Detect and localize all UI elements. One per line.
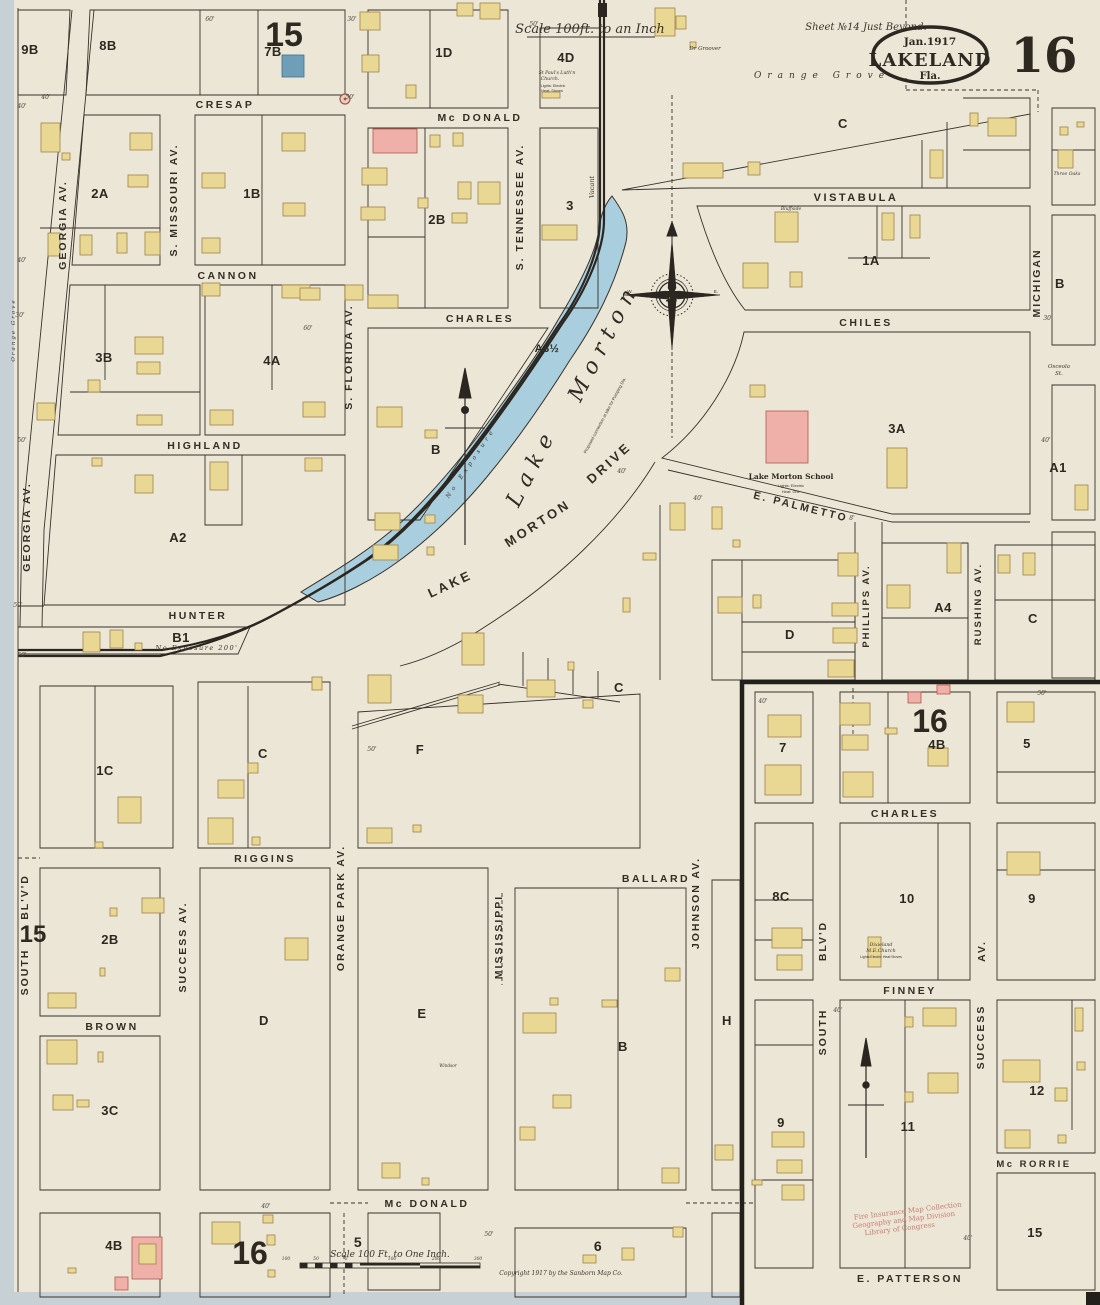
building-footprint xyxy=(406,85,416,98)
sheet-number: 15 xyxy=(265,16,303,54)
street-label: CHILES xyxy=(839,317,893,329)
building-footprint xyxy=(622,1248,634,1260)
building-footprint xyxy=(772,928,802,948)
building-footprint xyxy=(142,898,164,913)
building-footprint xyxy=(765,765,801,795)
building-footprint xyxy=(750,385,765,397)
building-footprint xyxy=(947,543,961,573)
dimension-mark: 40' xyxy=(16,103,27,110)
building-footprint xyxy=(768,715,801,737)
building-footprint xyxy=(923,1008,956,1026)
building-footprint xyxy=(92,458,102,466)
dimension-mark: 40' xyxy=(40,94,51,101)
block-number: 6 xyxy=(594,1238,602,1254)
building-footprint xyxy=(382,1163,400,1178)
block-number: 8B xyxy=(99,38,117,53)
street-label: Mc DONALD xyxy=(385,1198,470,1210)
block-number: F xyxy=(416,742,424,757)
building-footprint xyxy=(838,553,858,576)
annotation: Lake Morton School xyxy=(749,472,834,481)
building-footprint xyxy=(553,1095,571,1108)
annotation: LAKELAND xyxy=(869,50,992,71)
block-number: 3B xyxy=(95,350,113,365)
dimension-mark: 40' xyxy=(757,698,768,705)
annotation: Osceola xyxy=(1048,364,1070,370)
building-footprint xyxy=(413,825,421,832)
building-footprint xyxy=(643,553,656,560)
building-footprint xyxy=(910,215,920,238)
street-label-vertical: SOUTH xyxy=(817,1009,829,1056)
street-label: BROWN xyxy=(85,1021,138,1033)
building-footprint xyxy=(457,3,473,16)
building-footprint xyxy=(1075,485,1088,510)
street-label-vertical: GEORGIA AV. xyxy=(21,482,33,572)
building-footprint xyxy=(345,285,363,300)
building-footprint xyxy=(368,675,391,703)
building-footprint xyxy=(715,1145,733,1160)
street-label-vertical: ORANGE PARK AV. xyxy=(335,845,347,971)
block-number: B1 xyxy=(172,630,190,645)
building-footprint xyxy=(53,1095,73,1110)
dimension-mark: 50' xyxy=(17,652,27,659)
building-footprint xyxy=(752,1180,762,1185)
block-number: 1D xyxy=(435,45,453,60)
sanborn-map-sheet: N CRESAPMc DONALDVISTABULACANNONCHARLESC… xyxy=(0,0,1100,1305)
block-number: H xyxy=(722,1013,732,1028)
building-footprint xyxy=(98,1052,103,1062)
building-footprint xyxy=(135,643,142,650)
block-number: 1B xyxy=(243,186,261,201)
street-label: E. PATTERSON xyxy=(857,1273,963,1285)
annotation: Dixieland xyxy=(868,942,892,948)
dimension-mark: 30' xyxy=(1043,315,1053,322)
block-number: 1A xyxy=(862,253,880,268)
annotation: Copyright 1917 by the Sanborn Map Co. xyxy=(499,1270,623,1277)
building-footprint xyxy=(303,402,325,417)
building-footprint xyxy=(930,150,943,178)
building-footprint xyxy=(905,1092,913,1102)
street-label: FINNEY xyxy=(883,985,937,997)
building-footprint xyxy=(268,1270,275,1277)
street-label-vertical: SUCCESS AV. xyxy=(177,901,189,992)
street-label-vertical: SOUTH xyxy=(19,949,31,996)
annotation: Orange Grove xyxy=(754,71,890,81)
block-number: A2 xyxy=(169,530,187,545)
building-footprint xyxy=(790,272,802,287)
building-footprint xyxy=(1060,127,1068,135)
dimension-mark: 30' xyxy=(347,16,357,23)
building-footprint xyxy=(1055,1088,1067,1101)
annotation: Lights: Electric xyxy=(778,483,804,488)
building-footprint xyxy=(100,968,105,976)
annotation: E. xyxy=(714,289,718,294)
block-number: E xyxy=(417,1006,426,1021)
block-number: 4D xyxy=(557,50,575,65)
block-number: 11 xyxy=(901,1119,916,1134)
building-footprint xyxy=(887,448,907,488)
street-label-vertical: BLV'D xyxy=(817,921,829,961)
building-footprint xyxy=(583,700,593,708)
building-footprint xyxy=(252,837,260,845)
building-footprint xyxy=(1058,150,1073,168)
building-footprint xyxy=(905,1017,913,1027)
block-number: A1 xyxy=(1049,460,1067,475)
street-label: Mc DONALD xyxy=(438,112,523,124)
block-number: 2B xyxy=(428,212,446,227)
building-footprint xyxy=(602,1000,617,1007)
building-footprint xyxy=(453,133,463,146)
annotation: Vacant xyxy=(588,175,596,198)
building-footprint xyxy=(568,662,574,670)
street-label: CRESAP xyxy=(196,99,255,111)
building-footprint xyxy=(882,213,894,240)
building-footprint xyxy=(128,175,148,187)
building-footprint xyxy=(202,283,220,296)
block-number: B xyxy=(431,442,441,457)
building-footprint xyxy=(210,462,228,490)
dimension-mark: 40' xyxy=(616,468,627,475)
building-footprint xyxy=(458,695,483,713)
building-footprint xyxy=(135,475,153,493)
building-footprint xyxy=(137,415,162,425)
dimension-mark: 50' xyxy=(1037,690,1047,697)
building-footprint xyxy=(766,411,808,463)
annotation: Fla. xyxy=(920,71,941,82)
building-footprint xyxy=(210,410,233,425)
annotation: Jan.1917 xyxy=(903,36,956,48)
annotation: Lights: Electric xyxy=(541,84,566,88)
dimension-mark: 50' xyxy=(484,1231,494,1238)
building-footprint xyxy=(842,735,868,750)
dimension-mark: 40' xyxy=(16,257,27,264)
building-footprint xyxy=(362,168,387,185)
building-footprint xyxy=(47,1040,77,1064)
svg-text:N: N xyxy=(666,290,678,305)
dimension-mark: 50' xyxy=(345,94,355,101)
building-footprint xyxy=(377,407,402,427)
dimension-mark: 100 xyxy=(388,1256,397,1262)
building-footprint xyxy=(970,113,978,126)
building-footprint xyxy=(480,3,500,19)
street-label: CANNON xyxy=(197,270,258,282)
building-footprint xyxy=(550,998,558,1005)
building-footprint xyxy=(1077,122,1084,127)
building-footprint xyxy=(665,968,680,981)
building-footprint xyxy=(928,1073,958,1093)
building-footprint xyxy=(777,955,802,970)
dimension-mark: 50' xyxy=(529,21,539,28)
building-footprint xyxy=(427,547,434,555)
building-footprint xyxy=(458,182,471,199)
dimension-mark: 40' xyxy=(1040,437,1051,444)
block-number: C xyxy=(838,116,848,131)
building-footprint xyxy=(833,628,857,643)
building-footprint xyxy=(772,1132,804,1147)
building-footprint xyxy=(110,908,117,916)
building-footprint xyxy=(908,692,921,703)
street-label-vertical: GEORGIA AV. xyxy=(57,180,69,270)
building-footprint xyxy=(80,235,92,255)
block-number: D xyxy=(259,1013,269,1028)
annotation: M.E.Church xyxy=(865,948,895,954)
sheet-number: 15 xyxy=(20,921,47,948)
annotation: Church. xyxy=(541,76,560,82)
annotation: Lights:Electric Heat:Stoves xyxy=(860,955,902,959)
street-label-vertical: JOHNSON AV. xyxy=(690,857,702,949)
dimension-mark: 40' xyxy=(260,1203,271,1210)
building-footprint xyxy=(115,1277,128,1290)
dimension-mark: 8' xyxy=(849,515,855,522)
building-footprint xyxy=(360,12,380,30)
block-number: C xyxy=(1028,611,1038,626)
street-label: CHARLES xyxy=(871,808,939,820)
street-label-vertical: AV. xyxy=(976,940,988,962)
building-footprint xyxy=(368,295,398,308)
building-footprint xyxy=(282,133,305,151)
building-footprint xyxy=(422,1178,429,1185)
street-label: BALLARD xyxy=(622,873,690,885)
block-number: 3 xyxy=(566,198,574,213)
street-label-vertical: MISSISSIPPI xyxy=(493,895,505,979)
street-label-vertical: S. MISSOURI AV. xyxy=(168,143,180,256)
building-footprint xyxy=(1005,1130,1030,1148)
building-footprint xyxy=(62,153,70,160)
building-footprint xyxy=(145,232,160,255)
paper-background-bottom-right xyxy=(742,1290,1100,1305)
dimension-mark: 50 xyxy=(313,1256,319,1262)
block-number: 4B xyxy=(928,737,946,752)
building-footprint xyxy=(1075,1008,1083,1031)
block-number: 4B xyxy=(105,1238,123,1253)
building-footprint xyxy=(623,598,630,612)
annotation: Dr Groover xyxy=(688,46,721,52)
block-number: C xyxy=(258,746,268,761)
annotation: Three Oaks xyxy=(1054,171,1081,177)
sheet-number: 16 xyxy=(232,1235,268,1271)
building-footprint xyxy=(139,1244,156,1264)
building-footprint xyxy=(828,660,854,677)
building-footprint xyxy=(998,555,1010,573)
annotation: St. xyxy=(1055,371,1063,377)
building-footprint xyxy=(263,1215,273,1223)
street-label-vertical: MICHIGAN xyxy=(1031,248,1043,317)
dimension-mark: 40' xyxy=(962,1235,973,1242)
street-label: HUNTER xyxy=(169,610,228,622)
block-number: 3C xyxy=(101,1103,119,1118)
block-number: 10 xyxy=(899,891,914,906)
building-footprint xyxy=(843,772,873,797)
building-footprint xyxy=(676,16,686,29)
building-footprint xyxy=(95,842,103,848)
annotation: Orange Grove xyxy=(11,298,17,361)
block-number: 12 xyxy=(1029,1083,1044,1098)
block-number: B xyxy=(618,1039,628,1054)
block-number: 4A xyxy=(263,353,281,368)
block-number: 2A xyxy=(91,186,109,201)
building-footprint xyxy=(718,597,742,613)
dimension-mark: 40' xyxy=(832,1007,843,1014)
scale-bar xyxy=(300,1263,480,1268)
street-label: Mc RORRIE xyxy=(996,1159,1071,1170)
block-number: 2B xyxy=(101,932,119,947)
street-label-vertical: RUSHING AV. xyxy=(973,563,984,645)
block-number: 3A xyxy=(888,421,906,436)
building-footprint xyxy=(137,362,160,374)
street-label: VISTABULA xyxy=(814,192,899,204)
block-number: 5 xyxy=(354,1234,362,1250)
building-footprint xyxy=(937,685,950,694)
building-footprint xyxy=(248,763,258,773)
building-footprint xyxy=(1023,553,1035,575)
building-footprint xyxy=(68,1268,76,1273)
building-footprint xyxy=(110,630,123,648)
building-footprint xyxy=(41,123,60,152)
building-footprint xyxy=(285,938,308,960)
building-footprint xyxy=(542,225,577,240)
dimension-mark: 60' xyxy=(205,16,215,23)
building-footprint xyxy=(312,677,322,690)
dimension-mark: 200 xyxy=(431,1256,441,1262)
building-footprint xyxy=(452,213,467,223)
building-footprint xyxy=(267,1235,275,1245)
street-label-vertical: SUCCESS xyxy=(975,1005,987,1070)
street-label-vertical: S. FLORIDA AV. xyxy=(343,304,355,409)
block-number: 5 xyxy=(1023,736,1031,751)
map-canvas: N CRESAPMc DONALDVISTABULACANNONCHARLESC… xyxy=(0,0,1100,1305)
building-footprint xyxy=(753,595,761,608)
annotation: No Exposure 200' xyxy=(155,644,239,652)
street-label: RIGGINS xyxy=(234,853,296,865)
annotation: Bluffside xyxy=(780,206,802,212)
building-footprint xyxy=(478,182,500,204)
corner-mark xyxy=(1086,1292,1100,1305)
building-footprint xyxy=(988,118,1016,136)
dimension-mark: 30' xyxy=(15,312,25,319)
building-footprint xyxy=(425,430,437,438)
block-number: C xyxy=(614,680,624,695)
building-footprint xyxy=(425,515,435,523)
building-footprint xyxy=(520,1127,535,1140)
building-footprint xyxy=(1077,1062,1085,1070)
building-footprint xyxy=(673,1227,683,1237)
building-footprint xyxy=(583,1255,596,1263)
building-footprint xyxy=(1058,1135,1066,1143)
building-footprint xyxy=(462,633,484,665)
building-footprint xyxy=(1007,852,1040,875)
building-footprint xyxy=(777,1160,802,1173)
building-footprint xyxy=(832,603,858,616)
building-footprint xyxy=(887,585,910,608)
building-footprint xyxy=(712,507,722,529)
building-footprint xyxy=(367,828,392,843)
annotation: Heat: Stoves xyxy=(541,89,563,93)
annotation: Heat: Grd. xyxy=(782,489,800,494)
building-footprint xyxy=(670,503,685,530)
building-footprint xyxy=(733,540,740,547)
building-footprint xyxy=(202,173,225,188)
building-footprint xyxy=(373,545,398,560)
building-footprint xyxy=(305,458,322,471)
street-label: CHARLES xyxy=(446,313,514,325)
annotation: St Paul's Luth'n xyxy=(539,70,576,76)
building-footprint xyxy=(743,263,768,288)
building-footprint xyxy=(83,632,100,652)
building-footprint xyxy=(300,288,320,300)
street-label-vertical: BL'V'D xyxy=(19,874,31,920)
block-number: 15 xyxy=(1027,1225,1042,1240)
building-footprint xyxy=(361,207,385,220)
building-footprint xyxy=(362,55,379,72)
building-footprint xyxy=(118,797,141,823)
sheet-number: 16 xyxy=(912,703,948,739)
dimension-mark: 50' xyxy=(367,746,377,753)
building-footprint xyxy=(202,238,220,253)
building-footprint xyxy=(527,680,555,697)
building-footprint xyxy=(375,513,400,530)
block-number: 9 xyxy=(777,1115,785,1130)
building-footprint xyxy=(37,403,55,420)
building-footprint xyxy=(208,818,233,844)
building-footprint xyxy=(1003,1060,1040,1082)
building-footprint xyxy=(430,135,440,147)
block-number: 8C xyxy=(772,889,790,904)
block-number: A4 xyxy=(934,600,952,615)
building-footprint xyxy=(662,1168,679,1183)
building-footprint xyxy=(418,198,428,208)
dimension-mark: 40' xyxy=(692,495,703,502)
block-number: B xyxy=(1055,276,1065,291)
street-label-vertical: PHILLIPS AV. xyxy=(861,564,872,647)
building-footprint xyxy=(117,233,127,253)
building-footprint xyxy=(218,780,244,798)
dimension-mark: 50' xyxy=(13,602,23,609)
building-footprint xyxy=(840,703,870,725)
annotation: Sheet №14 Just Beyond. xyxy=(805,22,926,33)
dimension-mark: 0 xyxy=(345,1256,348,1262)
dimension-mark: 300 xyxy=(474,1256,483,1262)
sheet-number: 16 xyxy=(1011,28,1078,84)
building-footprint xyxy=(48,993,76,1008)
annotation: Windsor xyxy=(439,1063,458,1068)
dimension-mark: 60' xyxy=(303,325,313,332)
building-footprint xyxy=(748,162,760,175)
street-label-vertical: S. TENNESSEE AV. xyxy=(514,144,526,271)
building-footprint xyxy=(1007,702,1034,722)
building-footprint xyxy=(775,212,798,242)
block-number: A3½ xyxy=(535,343,560,355)
building-footprint xyxy=(283,203,305,216)
building-footprint xyxy=(683,163,723,178)
block-number: 7 xyxy=(779,740,787,755)
block-number: D xyxy=(785,627,795,642)
building-footprint xyxy=(77,1100,89,1107)
block-number: 9 xyxy=(1028,891,1036,906)
dimension-mark: 50' xyxy=(17,437,27,444)
block-number: 9B xyxy=(21,42,39,57)
building-footprint xyxy=(885,728,897,734)
building-footprint xyxy=(135,337,163,354)
building-footprint xyxy=(373,129,417,153)
building-footprint xyxy=(782,1185,804,1200)
building-footprint xyxy=(88,380,100,392)
annotation: W. xyxy=(627,289,632,294)
building-footprint xyxy=(130,133,152,150)
building-footprint xyxy=(282,55,304,77)
street-label: HIGHLAND xyxy=(167,440,242,452)
dimension-mark: 100 xyxy=(282,1256,291,1262)
block-number: 1C xyxy=(96,763,114,778)
building-footprint xyxy=(523,1013,556,1033)
